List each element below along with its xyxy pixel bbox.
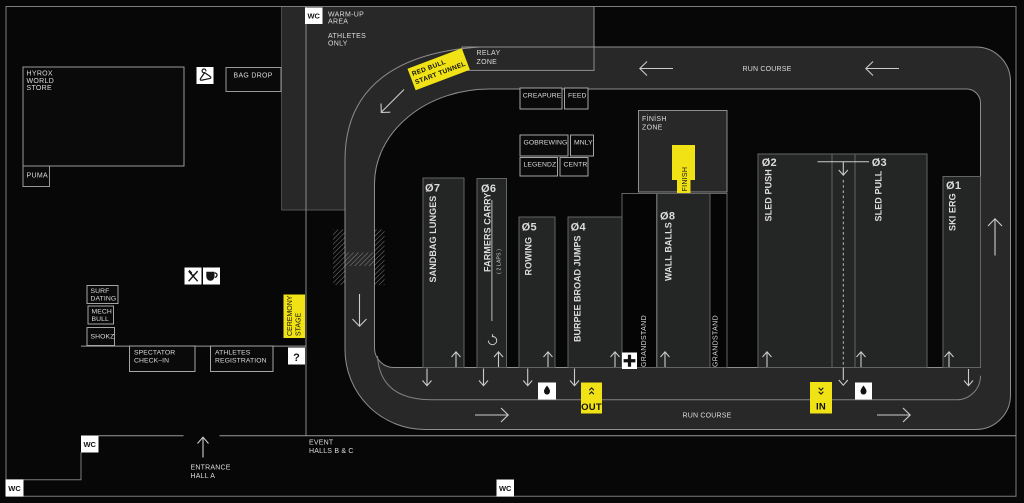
svg-text:SLED PUSH: SLED PUSH <box>764 169 774 221</box>
svg-text:WC: WC <box>8 484 21 493</box>
svg-text:Ø7: Ø7 <box>425 183 440 195</box>
svg-text:SKI ERG: SKI ERG <box>948 193 958 231</box>
svg-text:ATHLETES: ATHLETES <box>328 33 366 40</box>
svg-text:BURPEE BROAD JUMPS: BURPEE BROAD JUMPS <box>573 235 583 342</box>
svg-text:SHOKZ: SHOKZ <box>91 334 115 341</box>
svg-text:SURF: SURF <box>91 288 110 295</box>
svg-text:PUMA: PUMA <box>27 173 48 180</box>
svg-text:FİNİSH: FİNİSH <box>642 114 667 123</box>
svg-text:OUT: OUT <box>581 402 602 413</box>
svg-text:ZONE: ZONE <box>642 125 663 132</box>
svg-text:SANDBAG LUNGES: SANDBAG LUNGES <box>428 196 438 283</box>
svg-text:EVENT: EVENT <box>309 440 334 447</box>
svg-text:RUN COURSE: RUN COURSE <box>742 66 791 73</box>
svg-text:FARMERS CARRY: FARMERS CARRY <box>483 193 493 272</box>
svg-text:Ø1: Ø1 <box>946 180 961 192</box>
svg-text:DATING: DATING <box>91 296 117 303</box>
svg-text:WALL BALLS: WALL BALLS <box>664 222 674 281</box>
svg-text:STORE: STORE <box>27 85 53 92</box>
svg-text:ROWING: ROWING <box>524 237 534 276</box>
svg-text:( 2 LAPS ): ( 2 LAPS ) <box>497 249 503 274</box>
svg-text:CEREMONY: CEREMONY <box>287 295 294 336</box>
svg-text:HYROX: HYROX <box>27 71 53 78</box>
svg-text:MECH: MECH <box>92 309 112 316</box>
svg-text:SPECTATOR: SPECTATOR <box>134 350 175 357</box>
svg-text:BAG DROP: BAG DROP <box>234 72 273 79</box>
svg-text:Ø2: Ø2 <box>762 157 777 169</box>
svg-text:LEGENDZ: LEGENDZ <box>524 162 557 169</box>
svg-text:ONLY: ONLY <box>328 40 348 47</box>
svg-text:GRANDSTAND: GRANDSTAND <box>713 315 720 367</box>
svg-text:?: ? <box>293 352 300 364</box>
svg-text:GOBREWING: GOBREWING <box>524 140 568 147</box>
svg-text:ATHLETES: ATHLETES <box>215 350 251 357</box>
svg-text:ENTRANCE: ENTRANCE <box>191 465 231 472</box>
svg-text:ZONE: ZONE <box>477 59 498 66</box>
svg-text:CENTR: CENTR <box>564 162 588 169</box>
svg-text:WARM-UP: WARM-UP <box>328 11 364 18</box>
svg-text:WC: WC <box>83 440 96 449</box>
svg-text:Ø4: Ø4 <box>571 222 587 234</box>
svg-text:CREAPURE: CREAPURE <box>523 93 562 100</box>
svg-text:FINISH: FINISH <box>682 167 689 192</box>
svg-text:BULL: BULL <box>92 316 110 323</box>
svg-text:WORLD: WORLD <box>27 78 55 85</box>
svg-text:WC: WC <box>307 12 320 21</box>
svg-text:IN: IN <box>816 402 826 413</box>
svg-text:RUN COURSE: RUN COURSE <box>682 413 731 420</box>
svg-text:WC: WC <box>499 484 512 493</box>
svg-text:AREA: AREA <box>328 19 348 26</box>
svg-text:Ø8: Ø8 <box>660 211 675 223</box>
svg-text:STAGE: STAGE <box>296 312 303 336</box>
svg-text:RELAY: RELAY <box>477 50 501 57</box>
svg-text:GRANDSTAND: GRANDSTAND <box>641 315 648 367</box>
svg-text:HALL A: HALL A <box>191 473 216 480</box>
svg-text:REGISTRATION: REGISTRATION <box>215 358 267 365</box>
svg-text:SLED PULL: SLED PULL <box>874 170 884 221</box>
svg-text:Ø3: Ø3 <box>872 157 887 169</box>
svg-text:CHECK–IN: CHECK–IN <box>134 358 169 365</box>
svg-text:FEED: FEED <box>568 93 587 100</box>
svg-text:Ø5: Ø5 <box>522 222 537 234</box>
svg-text:MNLY: MNLY <box>574 140 593 147</box>
svg-text:HALLS B & C: HALLS B & C <box>309 448 354 455</box>
